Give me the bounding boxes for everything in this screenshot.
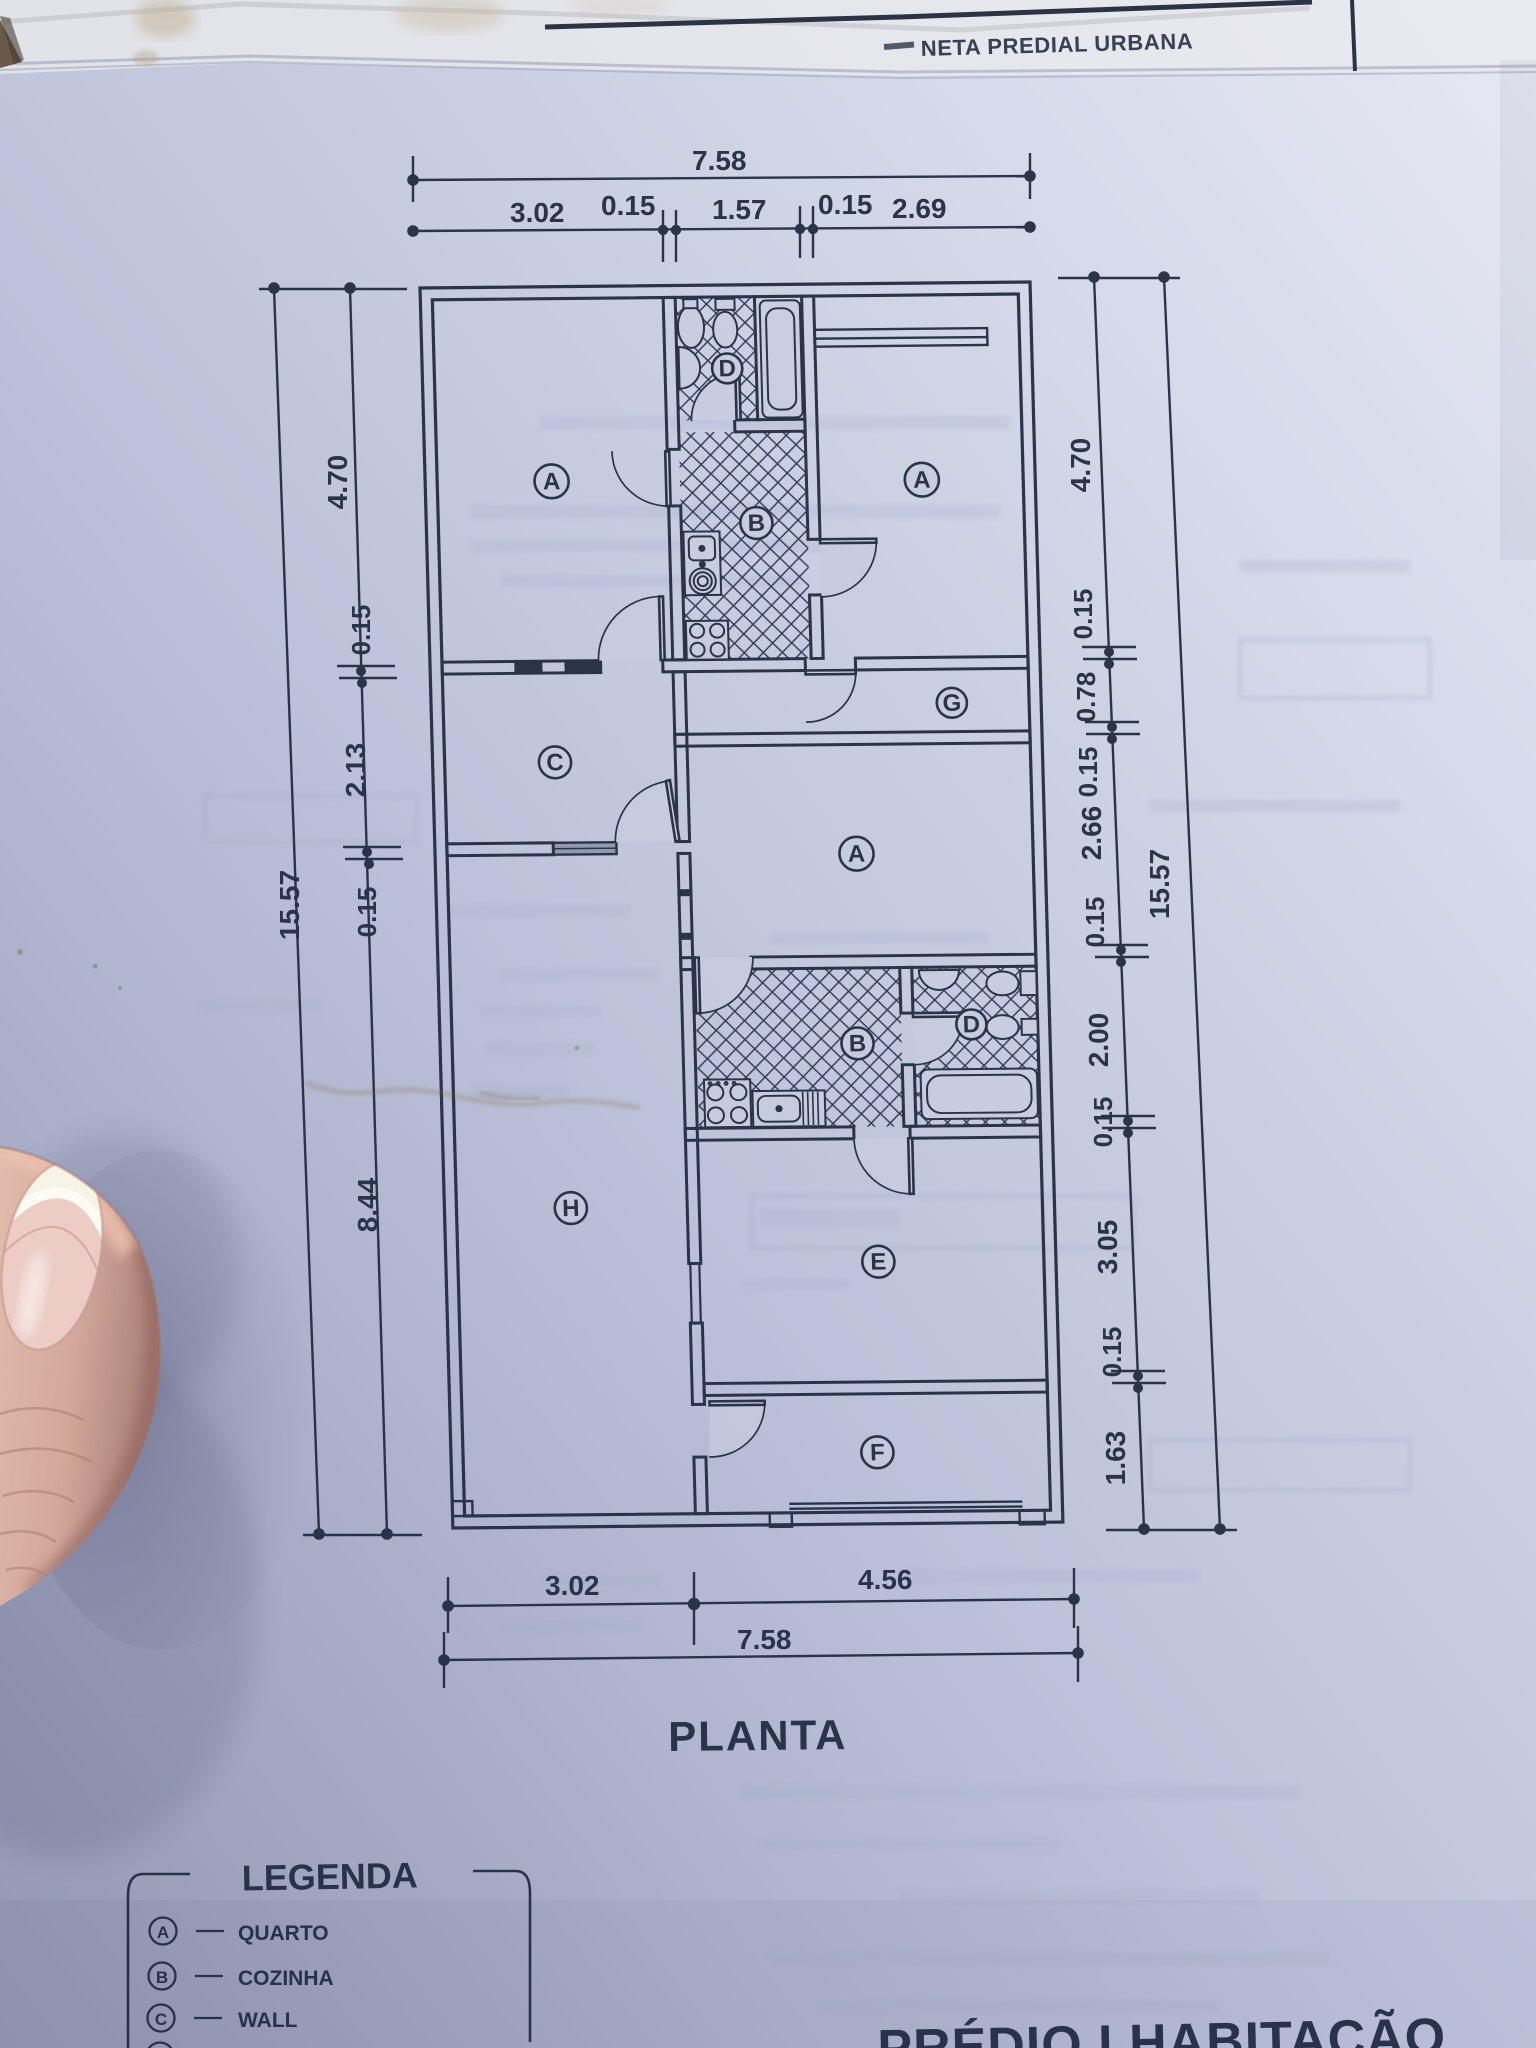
svg-text:2.66: 2.66 [1076,806,1107,861]
svg-text:7.58: 7.58 [737,1624,792,1655]
svg-text:2.00: 2.00 [1083,1013,1114,1068]
svg-text:3.02: 3.02 [545,1570,600,1601]
svg-text:B: B [848,1030,866,1057]
svg-text:4.70: 4.70 [1065,438,1096,493]
svg-text:15.57: 15.57 [274,870,305,940]
svg-text:8.44: 8.44 [352,1177,383,1232]
svg-text:2.13: 2.13 [340,743,371,798]
svg-text:4.56: 4.56 [858,1564,913,1595]
svg-text:LEGENDA: LEGENDA [241,1854,418,1898]
svg-text:0.15: 0.15 [601,190,656,221]
svg-text:15.57: 15.57 [1144,849,1175,919]
svg-text:A: A [847,841,865,868]
svg-text:H: H [562,1195,580,1222]
svg-text:0.15: 0.15 [1097,1327,1127,1378]
svg-text:0.15: 0.15 [346,605,376,656]
svg-text:1.57: 1.57 [712,194,767,225]
svg-text:A: A [543,468,561,495]
svg-text:PLANTA: PLANTA [668,1711,848,1760]
svg-text:C: C [546,749,564,776]
svg-text:0.15: 0.15 [352,887,382,938]
svg-text:3.02: 3.02 [510,197,565,228]
svg-text:0.15: 0.15 [1080,897,1110,948]
svg-text:2.69: 2.69 [892,193,947,224]
svg-text:E: E [870,1249,887,1276]
svg-text:F: F [870,1439,885,1466]
svg-text:0.15: 0.15 [1073,747,1103,798]
svg-text:0.78: 0.78 [1071,672,1101,723]
svg-text:A: A [913,467,931,494]
svg-text:1.63: 1.63 [1100,1431,1131,1486]
svg-text:B: B [747,510,765,537]
svg-text:0.15: 0.15 [818,189,873,220]
svg-text:0.15: 0.15 [1088,1097,1118,1148]
svg-text:D: D [718,355,736,382]
svg-text:G: G [942,690,961,717]
svg-text:D: D [962,1011,980,1038]
svg-text:0.15: 0.15 [1068,589,1098,640]
svg-text:3.05: 3.05 [1092,1220,1123,1275]
svg-text:4.70: 4.70 [322,455,353,510]
svg-text:7.58: 7.58 [692,145,747,176]
